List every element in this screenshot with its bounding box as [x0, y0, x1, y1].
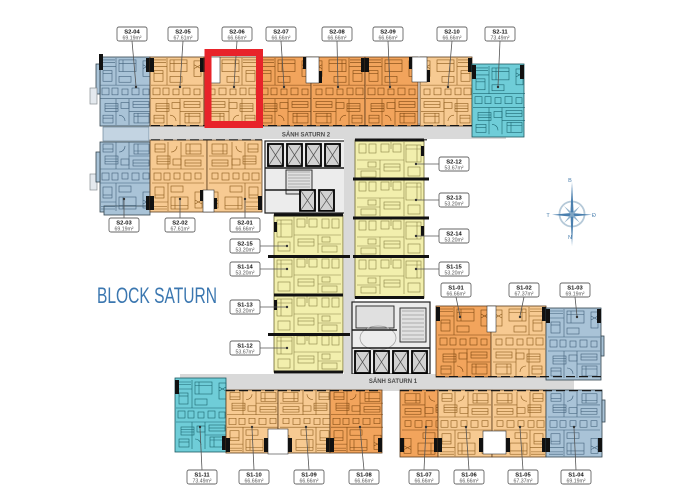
- svg-text:53.20m²: 53.20m²: [444, 271, 463, 277]
- svg-text:73.49m²: 73.49m²: [192, 479, 211, 485]
- svg-text:67.37m²: 67.37m²: [513, 479, 532, 485]
- svg-text:67.37m²: 67.37m²: [514, 292, 533, 298]
- svg-text:73.49m²: 73.49m²: [490, 36, 509, 42]
- svg-text:67.61m²: 67.61m²: [170, 227, 189, 233]
- svg-text:BLOCK SATURN: BLOCK SATURN: [97, 283, 217, 308]
- svg-text:66.66m²: 66.66m²: [414, 479, 433, 485]
- svg-text:66.66m²: 66.66m²: [271, 36, 290, 42]
- svg-text:53.20m²: 53.20m²: [235, 271, 254, 277]
- svg-text:69.19m²: 69.19m²: [566, 479, 585, 485]
- svg-text:66.66m²: 66.66m²: [378, 36, 397, 42]
- svg-text:66.66m²: 66.66m²: [227, 36, 246, 42]
- svg-text:66.66m²: 66.66m²: [442, 36, 461, 42]
- svg-text:53.67m²: 53.67m²: [444, 166, 463, 172]
- svg-text:69.19m²: 69.19m²: [565, 292, 584, 298]
- svg-text:SẢNH SATURN 1: SẢNH SATURN 1: [369, 378, 418, 385]
- svg-text:67.61m²: 67.61m²: [173, 36, 192, 42]
- svg-text:53.20m²: 53.20m²: [444, 202, 463, 208]
- svg-text:66.66m²: 66.66m²: [446, 292, 465, 298]
- svg-text:SẢNH SATURN 2: SẢNH SATURN 2: [282, 132, 331, 139]
- svg-text:66.66m²: 66.66m²: [244, 479, 263, 485]
- svg-text:53.20m²: 53.20m²: [235, 309, 254, 315]
- svg-text:66.66m²: 66.66m²: [459, 479, 478, 485]
- svg-text:66.66m²: 66.66m²: [299, 479, 318, 485]
- svg-text:66.66m²: 66.66m²: [327, 36, 346, 42]
- svg-text:Đ: Đ: [592, 213, 596, 219]
- svg-text:69.19m²: 69.19m²: [122, 36, 141, 42]
- svg-text:66.66m²: 66.66m²: [354, 479, 373, 485]
- svg-text:69.19m²: 69.19m²: [114, 227, 133, 233]
- svg-text:N: N: [568, 235, 572, 241]
- svg-text:B: B: [568, 178, 572, 184]
- svg-text:53.67m²: 53.67m²: [235, 350, 254, 356]
- svg-text:66.66m²: 66.66m²: [235, 227, 254, 233]
- svg-text:53.20m²: 53.20m²: [235, 248, 254, 254]
- svg-text:53.20m²: 53.20m²: [444, 238, 463, 244]
